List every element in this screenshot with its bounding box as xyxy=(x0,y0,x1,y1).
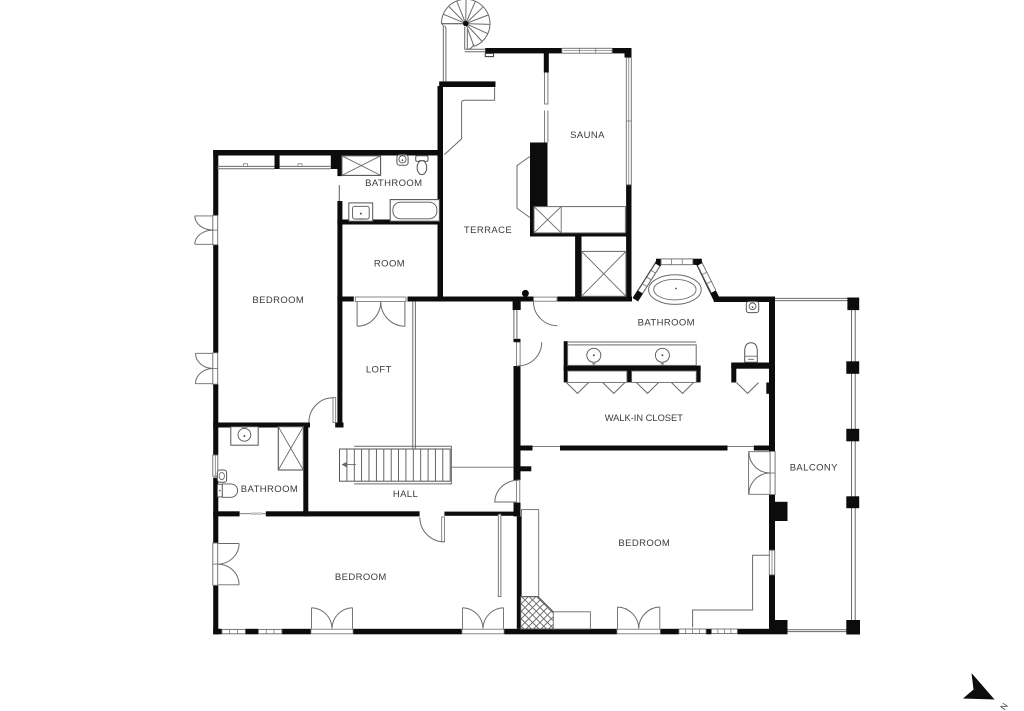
svg-text:LOFT: LOFT xyxy=(366,364,392,375)
svg-text:ROOM: ROOM xyxy=(374,258,405,269)
svg-text:SAUNA: SAUNA xyxy=(570,130,605,141)
svg-text:BEDROOM: BEDROOM xyxy=(335,572,387,583)
svg-text:BATHROOM: BATHROOM xyxy=(241,484,298,495)
svg-text:BEDROOM: BEDROOM xyxy=(252,295,304,306)
svg-text:BATHROOM: BATHROOM xyxy=(365,178,422,189)
svg-text:BALCONY: BALCONY xyxy=(790,462,838,473)
svg-text:BATHROOM: BATHROOM xyxy=(638,317,695,328)
svg-text:BEDROOM: BEDROOM xyxy=(618,538,670,549)
svg-text:TERRACE: TERRACE xyxy=(464,225,512,236)
svg-text:HALL: HALL xyxy=(393,489,418,500)
svg-text:WALK-IN CLOSET: WALK-IN CLOSET xyxy=(605,413,683,423)
